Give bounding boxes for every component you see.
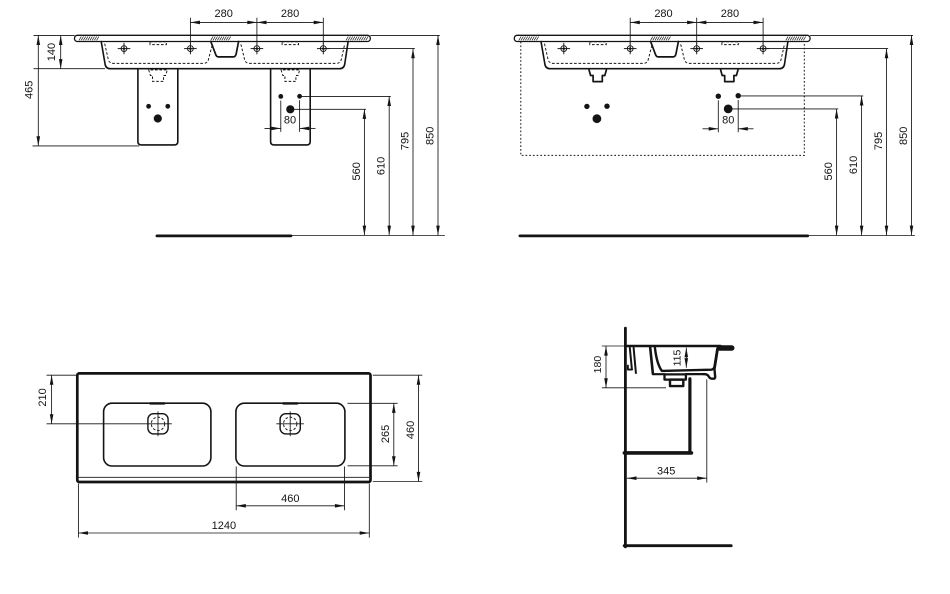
svg-text:140: 140 <box>46 43 58 61</box>
svg-text:460: 460 <box>405 421 417 439</box>
svg-text:280: 280 <box>215 8 233 20</box>
svg-text:460: 460 <box>281 493 299 505</box>
svg-text:280: 280 <box>281 8 299 20</box>
svg-text:795: 795 <box>873 132 885 150</box>
svg-text:115: 115 <box>671 349 683 366</box>
svg-text:850: 850 <box>425 127 437 145</box>
svg-text:345: 345 <box>657 465 675 477</box>
svg-text:610: 610 <box>848 156 860 174</box>
svg-text:560: 560 <box>823 162 835 180</box>
svg-text:210: 210 <box>37 388 49 406</box>
svg-text:265: 265 <box>380 425 392 443</box>
svg-text:80: 80 <box>284 115 296 127</box>
svg-text:850: 850 <box>898 127 910 145</box>
svg-text:80: 80 <box>722 115 734 127</box>
svg-text:560: 560 <box>351 162 363 180</box>
svg-text:610: 610 <box>376 157 388 175</box>
svg-text:280: 280 <box>654 8 672 20</box>
svg-text:180: 180 <box>592 356 604 374</box>
svg-text:795: 795 <box>400 132 412 150</box>
svg-text:280: 280 <box>721 8 739 20</box>
svg-text:1240: 1240 <box>212 520 236 532</box>
svg-text:465: 465 <box>24 81 36 99</box>
